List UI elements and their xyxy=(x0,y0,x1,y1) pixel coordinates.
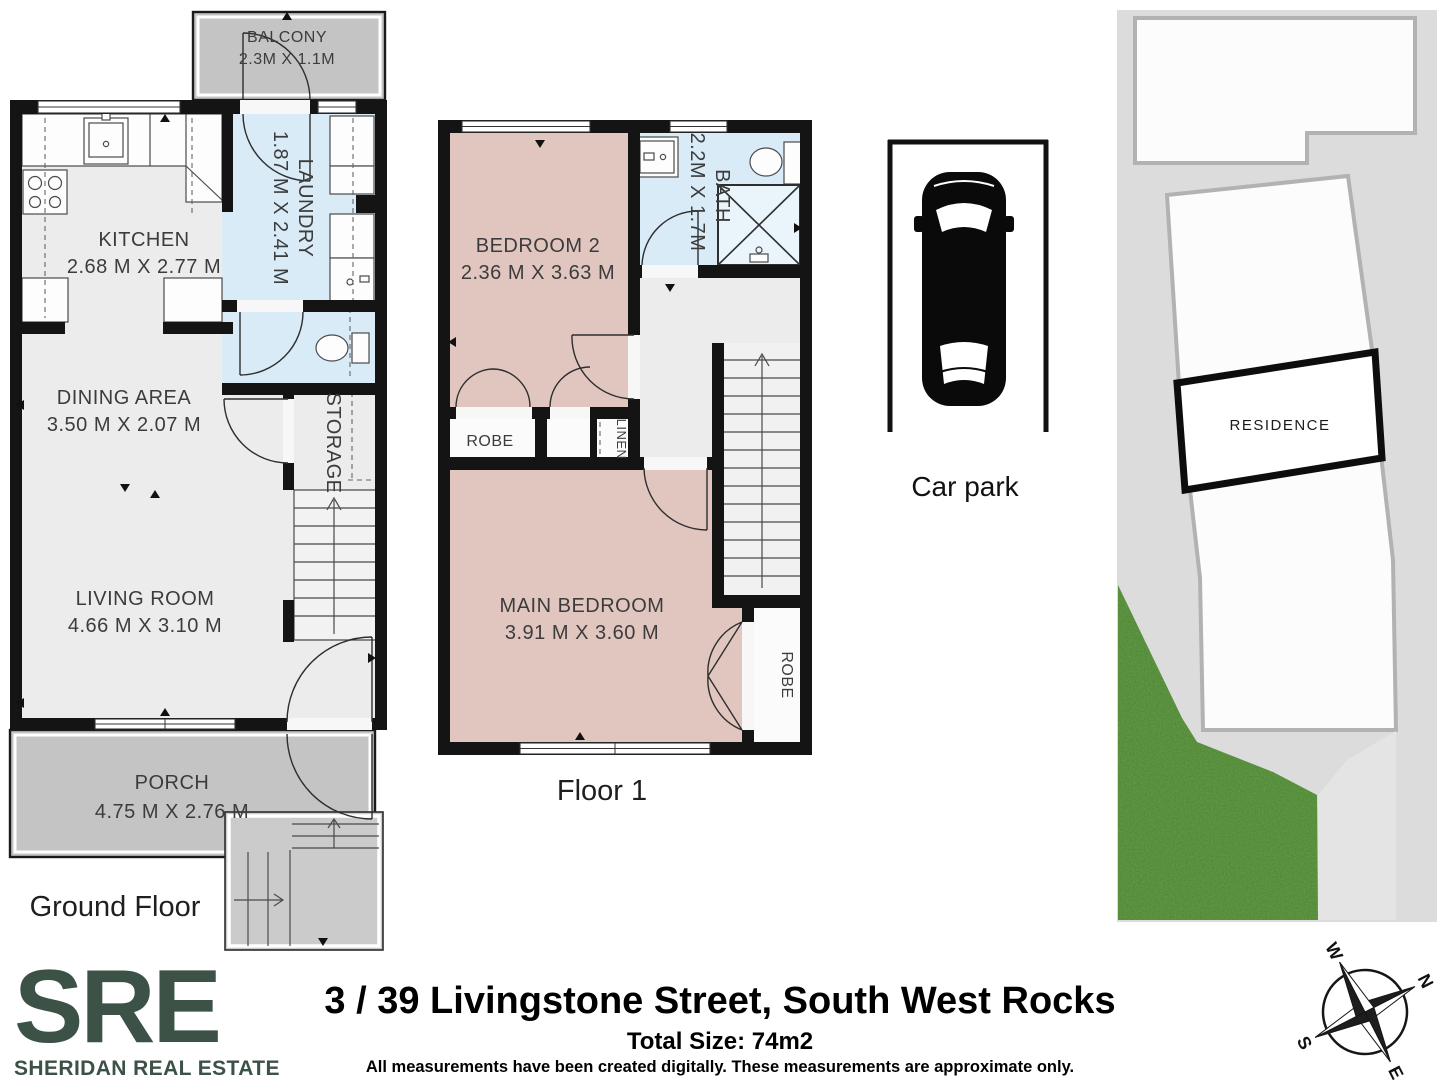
agency-logo-subtitle: SHERIDAN REAL ESTATE xyxy=(14,1057,280,1081)
stairs-icon xyxy=(724,343,800,595)
room-closet xyxy=(547,419,590,457)
compass-n: N xyxy=(1414,971,1438,992)
door-opening xyxy=(456,407,532,419)
main-bedroom-label: MAIN BEDROOM xyxy=(500,595,665,617)
door-opening xyxy=(287,718,372,730)
car-icon xyxy=(914,172,1014,406)
external-stairs-icon xyxy=(225,812,383,950)
door-opening xyxy=(642,265,698,278)
bedroom2-label: BEDROOM 2 xyxy=(476,235,601,257)
site-plan: RESIDENCE xyxy=(1115,0,1440,930)
robe-label: ROBE xyxy=(466,433,513,450)
compass-w: W xyxy=(1321,939,1347,963)
door-opening xyxy=(237,300,303,312)
door-opening xyxy=(628,335,640,399)
car-park-label: Car park xyxy=(911,471,1019,502)
car-park-diagram: Car park xyxy=(860,120,1080,520)
bedroom2-dims: 2.36 M X 3.63 M xyxy=(461,262,615,284)
compass-s: S xyxy=(1293,1033,1316,1053)
stairs-icon xyxy=(294,490,375,640)
porch-dims: 4.75 M X 2.76 M xyxy=(95,801,249,823)
toilet-icon xyxy=(316,333,369,363)
robe2-label: ROBE xyxy=(778,651,795,698)
ground-floor-title: Ground Floor xyxy=(30,891,201,923)
compass-rose-icon: N E S W xyxy=(1290,935,1440,1085)
balcony-dims: 2.3M X 1.1M xyxy=(239,51,335,68)
door-opening xyxy=(550,407,590,419)
agency-logo-text: SRE xyxy=(14,966,280,1049)
residence-label: RESIDENCE xyxy=(1229,417,1330,434)
storage-label: STORAGE xyxy=(322,393,344,494)
vanity-sink-icon xyxy=(636,137,678,177)
agency-logo: SRE SHERIDAN REAL ESTATE xyxy=(14,966,280,1081)
dining-label: DINING AREA xyxy=(57,387,192,409)
property-address: 3 / 39 Livingstone Street, South West Ro… xyxy=(250,980,1190,1023)
total-size: Total Size: 74m2 xyxy=(250,1028,1190,1056)
door-opening xyxy=(283,399,294,463)
porch-label: PORCH xyxy=(135,772,210,794)
door-opening xyxy=(742,622,754,730)
ground-floor-plan: BALCONY 2.3M X 1.1M KITCHEN 2.68 M X 2.7… xyxy=(0,0,400,960)
kitchen-label: KITCHEN xyxy=(98,229,189,251)
door-opening xyxy=(240,100,310,114)
main-bedroom-dims: 3.91 M X 3.60 M xyxy=(505,622,659,644)
laundry-label: LAUNDRY xyxy=(294,159,316,258)
door-opening xyxy=(644,457,707,470)
floor-1-title: Floor 1 xyxy=(557,775,647,807)
living-dims: 4.66 M X 3.10 M xyxy=(68,615,222,637)
linen-label: LINEN xyxy=(614,419,629,460)
living-label: LIVING ROOM xyxy=(76,588,215,610)
balcony-label: BALCONY xyxy=(247,29,327,46)
kitchen-dims: 2.68 M X 2.77 M xyxy=(67,256,221,278)
laundry-dims: 1.87 M X 2.41 M xyxy=(269,131,291,285)
dining-dims: 3.50 M X 2.07 M xyxy=(47,414,201,436)
bath-dims: 2.2M X 1.7M xyxy=(686,133,708,252)
bath-label: BATH xyxy=(711,169,733,223)
floor-1-plan: BEDROOM 2 2.36 M X 3.63 M BATH 2.2M X 1.… xyxy=(430,100,830,820)
sink-icon xyxy=(84,110,128,164)
disclaimer: All measurements have been created digit… xyxy=(250,1058,1190,1077)
